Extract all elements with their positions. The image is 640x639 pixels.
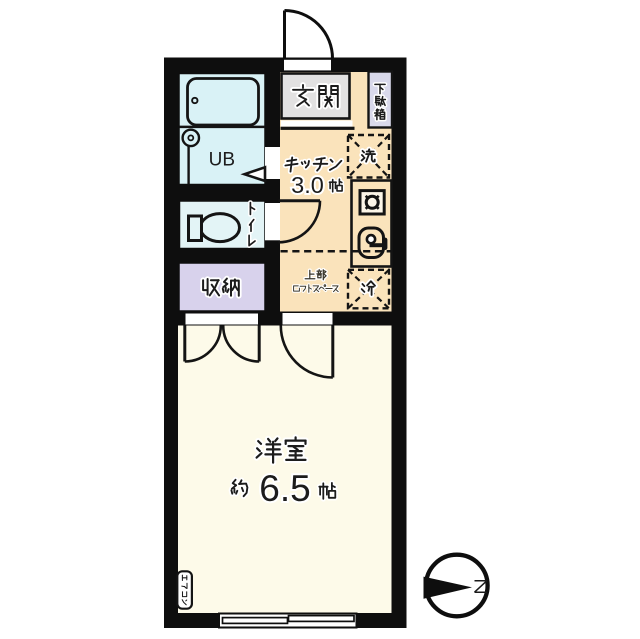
svg-text:UB: UB <box>209 150 235 171</box>
svg-text:3.0: 3.0 <box>291 172 324 198</box>
svg-text:6.5: 6.5 <box>259 468 310 509</box>
